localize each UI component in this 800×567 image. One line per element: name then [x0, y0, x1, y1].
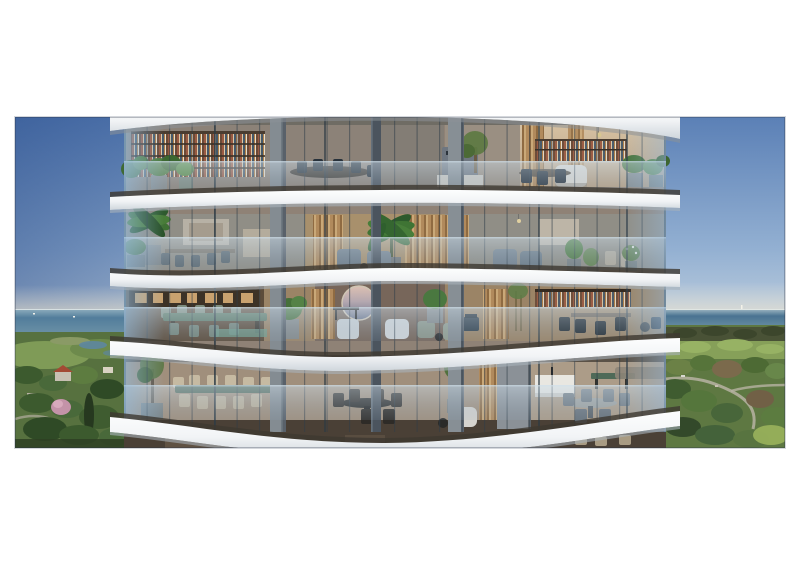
page-background: [0, 0, 800, 567]
building-rendering-photo: [15, 117, 785, 448]
rendering-scene: [15, 117, 785, 448]
